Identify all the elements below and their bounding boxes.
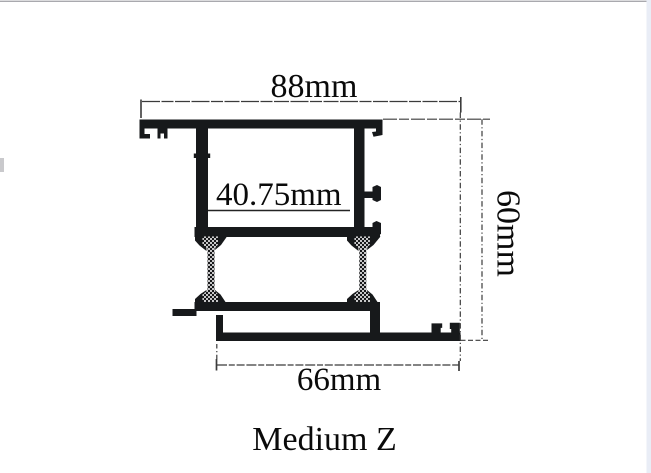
svg-text:88mm: 88mm <box>271 68 358 105</box>
svg-text:66mm: 66mm <box>297 362 382 398</box>
svg-text:Medium Z: Medium Z <box>252 421 396 458</box>
svg-text:60mm: 60mm <box>490 190 527 277</box>
svg-text:40.75mm: 40.75mm <box>216 177 342 213</box>
